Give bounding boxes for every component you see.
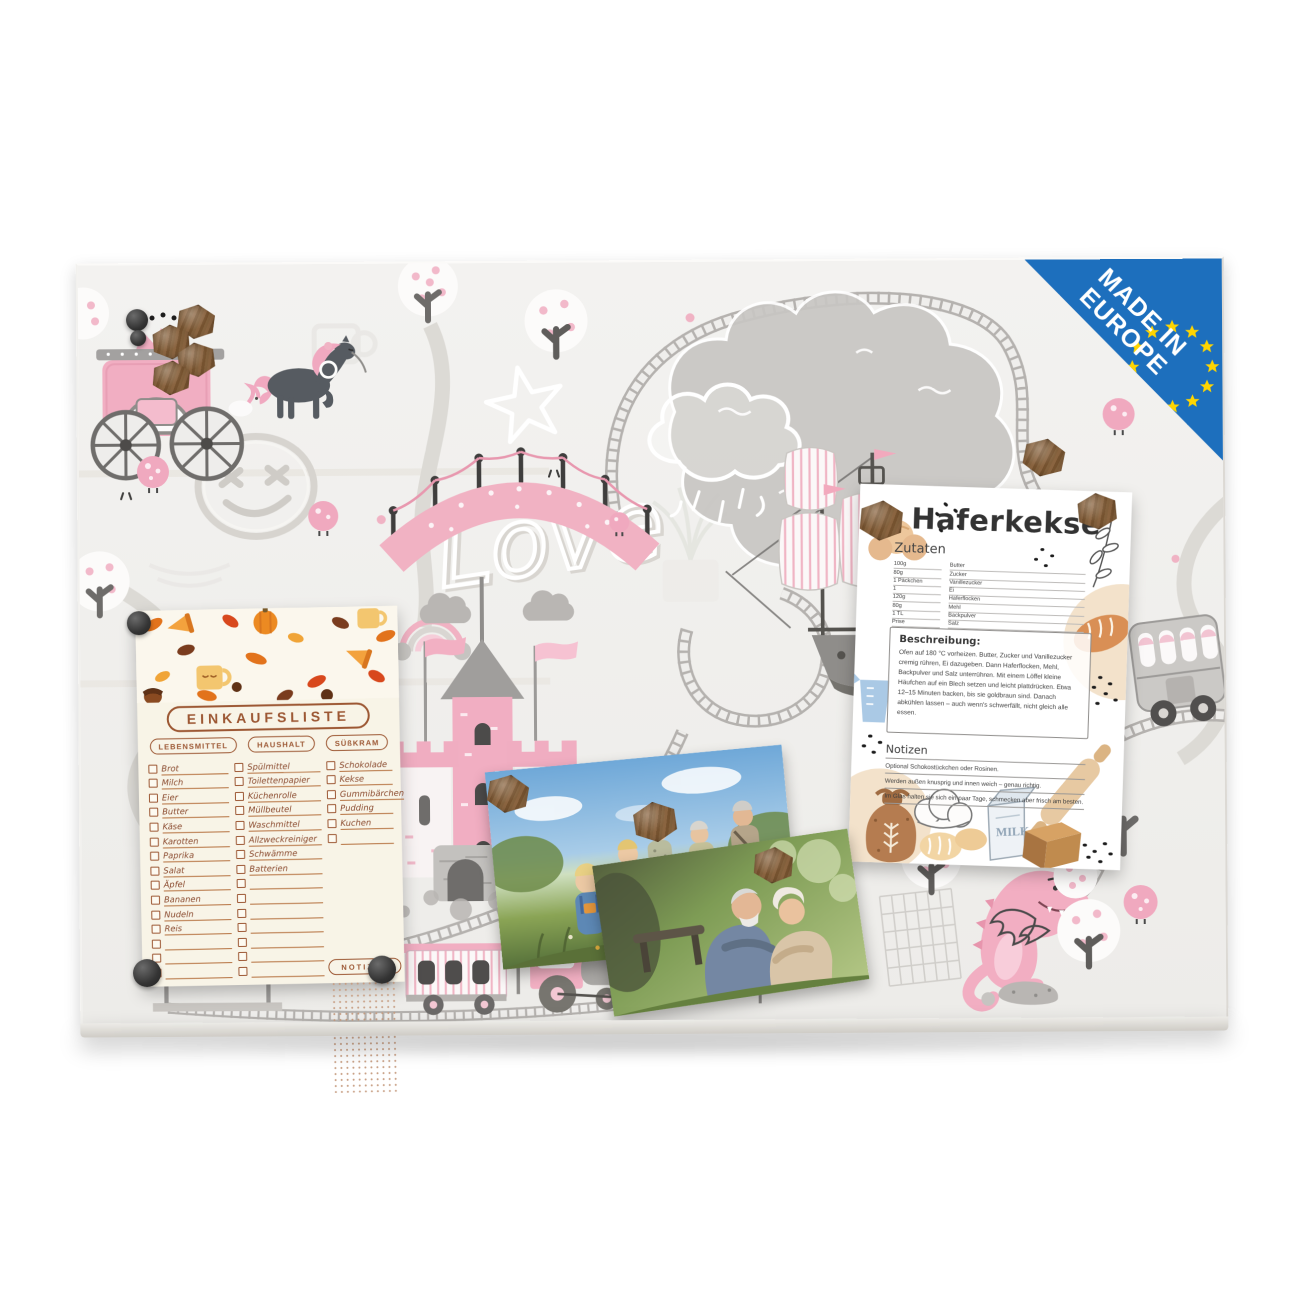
shopping-list-item-label: Toilettenpapier xyxy=(248,775,321,788)
shopping-list-pad: EINKAUFSLISTE LEBENSMITTEL HAUSHALT SÜßK… xyxy=(135,606,404,987)
checkbox-icon xyxy=(238,952,247,961)
checkbox-icon xyxy=(238,938,247,947)
round-magnet xyxy=(368,956,396,984)
shopping-list-item-label: Salat xyxy=(163,864,230,877)
shopping-list-item-label: Reis xyxy=(164,922,231,935)
shopping-list-column-suesskram: SchokoladeKekseGummibärchenPuddingKuchen xyxy=(326,756,394,845)
checkbox-icon xyxy=(148,764,157,773)
checkbox-icon xyxy=(150,837,159,846)
checkbox-icon xyxy=(236,835,245,844)
shopping-list-row: Nudeln xyxy=(151,905,231,921)
shopping-list-item-label: Kekse xyxy=(340,773,393,786)
category-pill-suesskram: SÜßKRAM xyxy=(326,734,389,751)
shopping-list-item-label: Käse xyxy=(162,820,229,833)
checkbox-icon xyxy=(327,775,336,784)
round-magnet xyxy=(126,309,148,331)
shopping-list-row: Eier xyxy=(149,788,229,804)
shopping-list-row xyxy=(328,829,394,845)
net-decoration xyxy=(880,889,962,986)
shopping-list-row: Spülmittel xyxy=(234,757,320,773)
shopping-list-item-label: Batterien xyxy=(249,862,322,875)
shopping-list-item-label: Brot xyxy=(161,762,228,775)
shopping-list-item-label: Müllbeutel xyxy=(248,804,321,817)
shopping-list-item-label: Äpfel xyxy=(164,878,231,891)
shopping-list-row: Küchenrolle xyxy=(235,787,321,803)
autumn-pattern-header xyxy=(135,606,399,703)
checkbox-icon xyxy=(327,819,336,828)
category-pill-lebensmittel: LEBENSMITTEL xyxy=(149,737,237,755)
shopping-list-item-label: Nudeln xyxy=(164,908,231,921)
shopping-list-item-label: Eier xyxy=(162,791,229,804)
checkbox-icon xyxy=(150,852,159,861)
checkbox-icon xyxy=(149,808,158,817)
checkbox-icon xyxy=(149,823,158,832)
shopping-list-row: Müllbeutel xyxy=(235,801,321,817)
checkbox-icon xyxy=(235,806,244,815)
shopping-list-item-label: Schwämme xyxy=(249,847,322,860)
shopping-list-row xyxy=(152,934,232,950)
shopping-list-row: Kuchen xyxy=(327,814,393,830)
shopping-list-row: Milch xyxy=(149,774,229,790)
shopping-list-row: Batterien xyxy=(236,859,322,875)
checkbox-icon xyxy=(152,939,161,948)
checkbox-icon xyxy=(150,866,159,875)
checkbox-icon xyxy=(152,925,161,934)
shopping-list-row: Bananen xyxy=(151,890,231,906)
checkbox-icon xyxy=(237,879,246,888)
magnetic-board: Love Love xyxy=(76,257,1229,1024)
shopping-list-row: Käse xyxy=(149,818,229,834)
shopping-list-column-haushalt: SpülmittelToilettenpapierKüchenrolleMüll… xyxy=(234,757,324,978)
wagon-illustration xyxy=(401,943,512,1015)
shopping-list-categories: LEBENSMITTEL HAUSHALT SÜßKRAM xyxy=(138,734,400,755)
checkbox-icon xyxy=(234,762,243,771)
shopping-list-column-lebensmittel: BrotMilchEierButterKäseKarottenPaprikaSa… xyxy=(148,759,232,979)
category-pill-haushalt: HAUSHALT xyxy=(248,735,315,752)
shopping-list-row: Allzweckreiniger xyxy=(236,830,322,846)
shopping-list-row: Äpfel xyxy=(151,876,231,892)
shopping-list-row xyxy=(238,947,324,963)
checkbox-icon xyxy=(236,850,245,859)
shopping-list-row xyxy=(237,874,323,890)
shopping-list-row: Pudding xyxy=(327,800,393,816)
shopping-list-row: Karotten xyxy=(150,832,230,848)
shopping-list-item-label: Gummibärchen xyxy=(340,787,404,800)
round-magnet xyxy=(133,959,161,987)
shopping-list-item-label xyxy=(252,975,325,977)
shopping-list-row: Schwämme xyxy=(236,845,322,861)
shopping-list-item-label xyxy=(341,842,394,844)
shopping-list-item-label: Pudding xyxy=(340,802,393,815)
shopping-list-item-label: Paprika xyxy=(163,849,230,862)
shopping-list-row: Toilettenpapier xyxy=(234,772,320,788)
recipe-notes-lines: Optional Schokostückchen oder Rosinen.We… xyxy=(884,759,1085,810)
shopping-list-row: Gummibärchen xyxy=(327,785,393,801)
ingredients-heading: Zutaten xyxy=(894,541,946,558)
shopping-list-row: Paprika xyxy=(150,847,230,863)
checkbox-icon xyxy=(238,967,247,976)
swan-icon xyxy=(228,386,258,416)
shopping-list-item-label xyxy=(166,977,233,979)
shopping-list-row xyxy=(237,889,323,905)
shopping-list-row: Reis xyxy=(151,920,231,936)
shopping-list-row xyxy=(152,963,232,979)
notes-dot-grid xyxy=(331,980,399,1093)
shopping-list-title: EINKAUFSLISTE xyxy=(167,702,371,732)
dots-bottom xyxy=(1082,842,1113,864)
checkbox-icon xyxy=(237,894,246,903)
checkbox-icon xyxy=(237,923,246,932)
star-wire-icon xyxy=(480,360,569,446)
shopping-list-row: Kekse xyxy=(326,770,392,786)
dots-left xyxy=(861,734,882,754)
checkbox-icon xyxy=(328,834,337,843)
shopping-list-row xyxy=(152,949,232,965)
loaf-icon xyxy=(1022,821,1082,870)
round-magnet xyxy=(127,611,151,635)
checkbox-icon xyxy=(326,761,335,770)
shopping-list-row: Salat xyxy=(150,861,230,877)
shopping-list-row: Schokolade xyxy=(326,756,392,772)
description-text: Ofen auf 180 °C vorheizen. Butter, Zucke… xyxy=(897,648,1081,724)
shopping-list-row xyxy=(237,918,323,934)
checkbox-icon xyxy=(327,790,336,799)
shopping-list-row xyxy=(238,962,324,978)
shopping-list-item-label: Küchenrolle xyxy=(248,789,321,802)
shopping-list-row: Brot xyxy=(148,759,228,775)
round-magnet xyxy=(130,330,146,346)
made-in-europe-badge: MADE IN EUROPE xyxy=(1025,259,1223,462)
checkbox-icon xyxy=(151,881,160,890)
shopping-list-item-label: Schokolade xyxy=(339,758,392,771)
ingredients-list: 100gButter80gZucker1 PäckchenVanillezuck… xyxy=(892,561,1086,634)
recipe-description-box: Beschreibung: Ofen auf 180 °C vorheizen.… xyxy=(886,627,1091,739)
checkbox-icon xyxy=(149,793,158,802)
shopping-list-row: Waschmittel xyxy=(235,816,321,832)
checkbox-icon xyxy=(149,779,158,788)
checkbox-icon xyxy=(151,910,160,919)
checkbox-icon xyxy=(151,896,160,905)
recipe-sheet: MILK Haferkekse Zutaten 100gButter80gZuc… xyxy=(848,484,1132,871)
shopping-list-item-label: Allzweckreiniger xyxy=(249,833,322,846)
shopping-list-columns: BrotMilchEierButterKäseKarottenPaprikaSa… xyxy=(138,756,404,979)
checkbox-icon xyxy=(235,792,244,801)
shopping-list-item-label: Bananen xyxy=(164,893,231,906)
shopping-list-item-label: Kuchen xyxy=(340,817,393,830)
shopping-list-item-label: Karotten xyxy=(163,835,230,848)
horse-illustration xyxy=(253,335,366,419)
shopping-list-item-label: Waschmittel xyxy=(248,818,321,831)
measuring-cup-icon xyxy=(853,674,891,723)
recipe-notes: Notizen Optional Schokostückchen oder Ro… xyxy=(884,743,1086,810)
page: { "badge": { "line1": "MADE IN", "line2"… xyxy=(0,0,1300,1300)
checkbox-icon xyxy=(237,908,246,917)
checkbox-icon xyxy=(235,777,244,786)
product-photo: Love Love xyxy=(0,0,1300,1300)
shopping-list-row xyxy=(237,903,323,919)
shopping-list-row: Butter xyxy=(149,803,229,819)
shopping-list-item-label: Butter xyxy=(162,806,229,819)
checkbox-icon xyxy=(327,804,336,813)
shopping-list-row xyxy=(238,932,324,948)
shopping-list-item-label: Spülmittel xyxy=(247,760,320,773)
checkbox-icon xyxy=(236,865,245,874)
shopping-list-item-label: Milch xyxy=(162,776,229,789)
checkbox-icon xyxy=(235,821,244,830)
